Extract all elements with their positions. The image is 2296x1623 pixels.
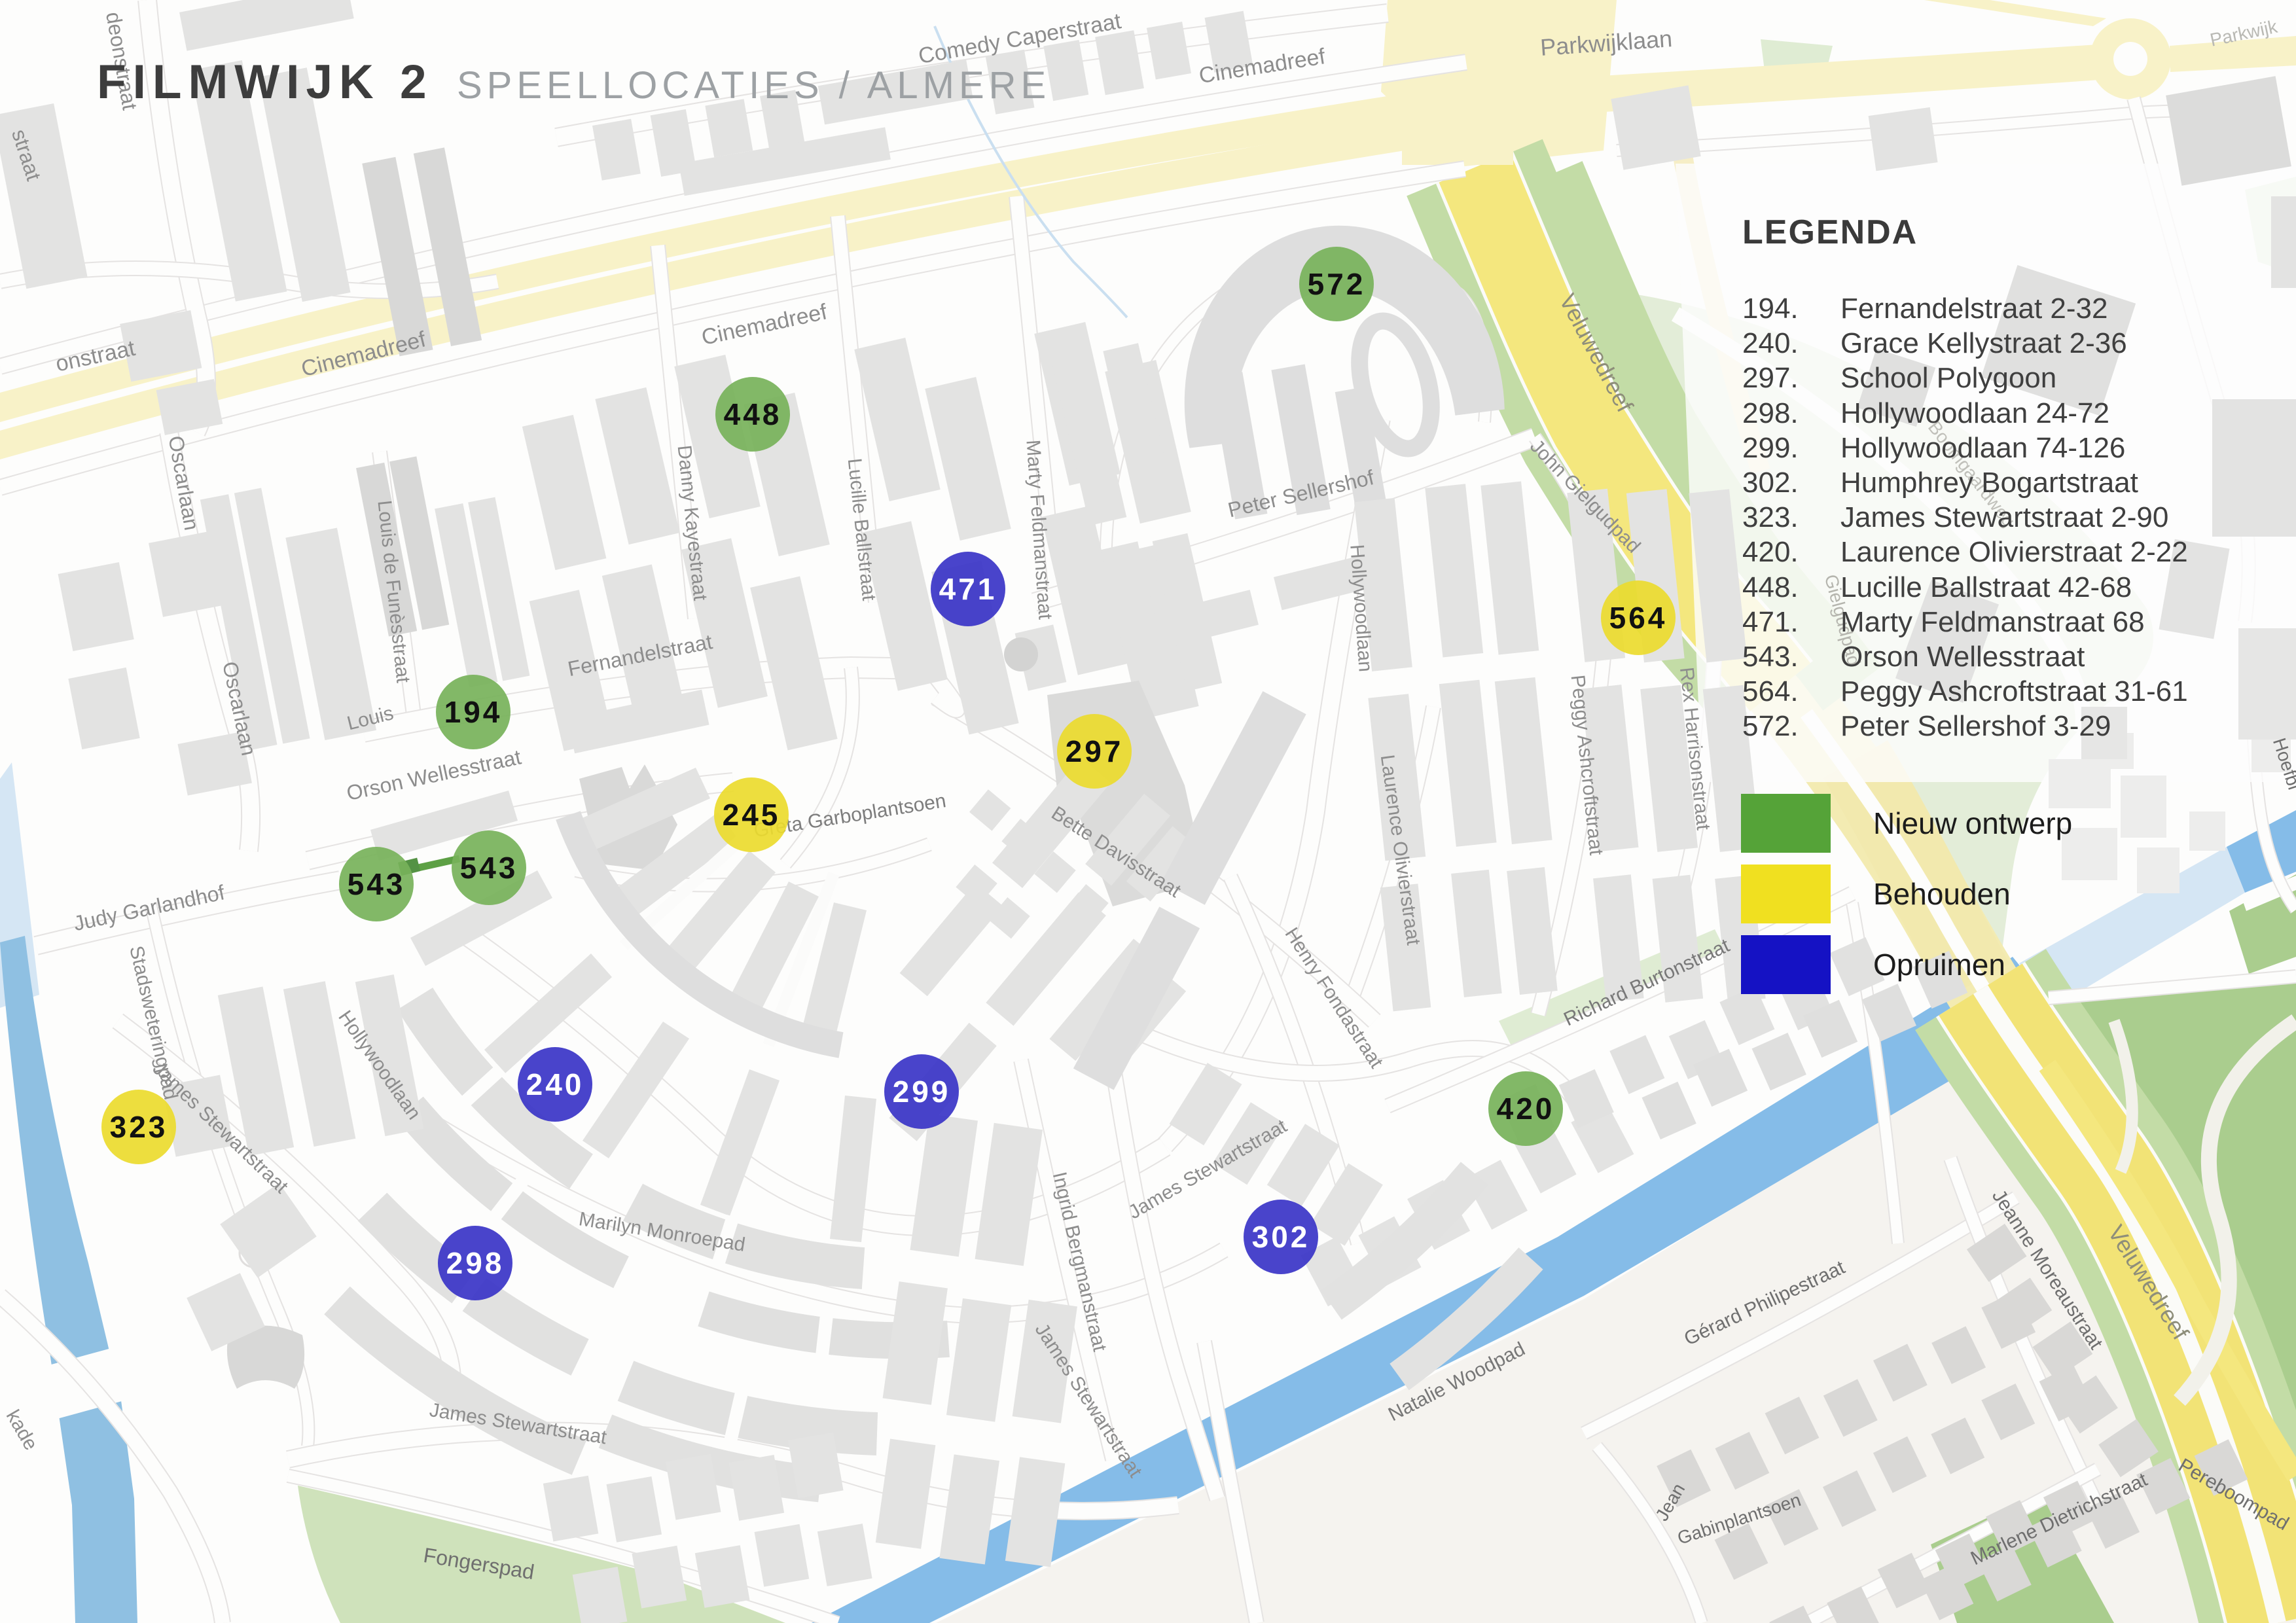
svg-text:323: 323	[110, 1110, 168, 1144]
svg-text:Humphrey Bogartstraat: Humphrey Bogartstraat	[1840, 467, 2138, 499]
svg-text:240: 240	[526, 1067, 584, 1101]
svg-text:FILMWIJK 2: FILMWIJK 2	[97, 56, 433, 109]
svg-text:245: 245	[723, 798, 781, 832]
svg-text:194.: 194.	[1742, 293, 1799, 325]
svg-text:Nieuw ontwerp: Nieuw ontwerp	[1873, 806, 2072, 840]
svg-text:448.: 448.	[1742, 571, 1799, 603]
svg-text:572: 572	[1308, 267, 1366, 301]
svg-text:297: 297	[1066, 734, 1124, 768]
svg-text:Lucille Ballstraat 42-68: Lucille Ballstraat 42-68	[1840, 571, 2132, 603]
svg-text:448: 448	[724, 397, 782, 431]
svg-text:Peter Sellershof 3-29: Peter Sellershof 3-29	[1840, 710, 2111, 742]
svg-text:School Polygoon: School Polygoon	[1840, 362, 2056, 394]
svg-text:543.: 543.	[1742, 641, 1799, 673]
svg-text:240.: 240.	[1742, 327, 1799, 359]
svg-text:Hollywoodlaan 24-72: Hollywoodlaan 24-72	[1840, 397, 2109, 429]
svg-text:LEGENDA: LEGENDA	[1742, 213, 1918, 251]
svg-text:302: 302	[1252, 1220, 1310, 1254]
svg-text:471.: 471.	[1742, 606, 1799, 638]
svg-text:Behouden: Behouden	[1873, 877, 2011, 911]
svg-text:297.: 297.	[1742, 362, 1799, 394]
svg-text:298: 298	[446, 1246, 505, 1280]
svg-text:543: 543	[460, 851, 518, 885]
svg-text:564.: 564.	[1742, 675, 1799, 707]
svg-text:Grace Kellystraat 2-36: Grace Kellystraat 2-36	[1840, 327, 2127, 359]
svg-text:Fernandelstraat 2-32: Fernandelstraat 2-32	[1840, 293, 2108, 325]
svg-text:Opruimen: Opruimen	[1873, 948, 2005, 982]
svg-text:420: 420	[1497, 1092, 1555, 1126]
svg-text:299.: 299.	[1742, 432, 1799, 464]
svg-text:471: 471	[939, 572, 997, 606]
svg-text:572.: 572.	[1742, 710, 1799, 742]
svg-text:SPEELLOCATIES / ALMERE: SPEELLOCATIES / ALMERE	[457, 64, 1050, 107]
svg-text:Orson Wellesstraat: Orson Wellesstraat	[1840, 641, 2085, 673]
svg-text:Hollywoodlaan 74-126: Hollywoodlaan 74-126	[1840, 432, 2125, 464]
svg-text:James Stewartstraat 2-90: James Stewartstraat 2-90	[1840, 501, 2168, 533]
svg-text:543: 543	[348, 867, 406, 901]
svg-text:Laurence Olivierstraat 2-22: Laurence Olivierstraat 2-22	[1840, 536, 2188, 568]
svg-text:564: 564	[1609, 601, 1668, 635]
svg-text:302.: 302.	[1742, 467, 1799, 499]
svg-text:194: 194	[444, 695, 503, 729]
svg-text:298.: 298.	[1742, 397, 1799, 429]
svg-text:323.: 323.	[1742, 501, 1799, 533]
svg-text:Peggy Ashcroftstraat 31-61: Peggy Ashcroftstraat 31-61	[1840, 675, 2188, 707]
svg-text:299: 299	[893, 1075, 951, 1109]
svg-text:420.: 420.	[1742, 536, 1799, 568]
svg-text:Marty Feldmanstraat 68: Marty Feldmanstraat 68	[1840, 606, 2145, 638]
